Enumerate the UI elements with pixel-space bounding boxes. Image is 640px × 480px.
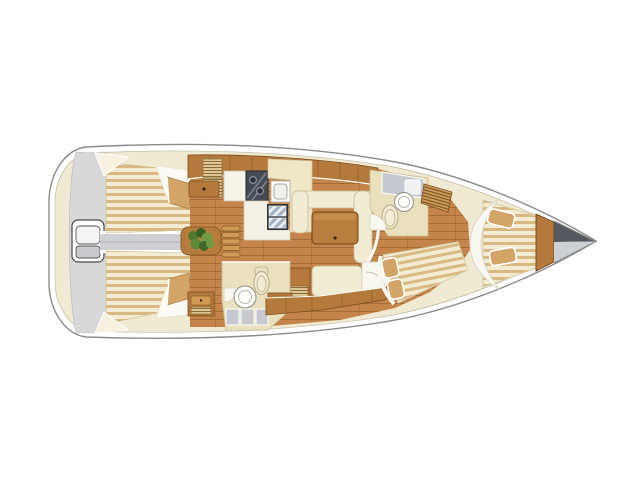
anchor-locker [554,221,596,263]
bow-bulkhead [536,214,554,271]
yacht-floor-plan [0,0,640,480]
galley-refrigerator [267,204,288,230]
aft-head-toilet [254,267,269,295]
forward-head-sink [395,193,414,212]
companionway-locker [188,292,214,316]
yacht-floor-plan-page [0,0,640,480]
galley-drawer [189,181,219,197]
cockpit-sole [100,231,186,253]
galley-stove [246,171,268,201]
aft-head-sink [234,286,256,308]
aft-head-shower-floor [226,309,268,325]
transom-door [72,220,104,262]
salon-table [312,212,358,244]
galley-sink [271,181,290,202]
galley-counter [224,171,246,201]
companionway-steps [222,226,240,257]
